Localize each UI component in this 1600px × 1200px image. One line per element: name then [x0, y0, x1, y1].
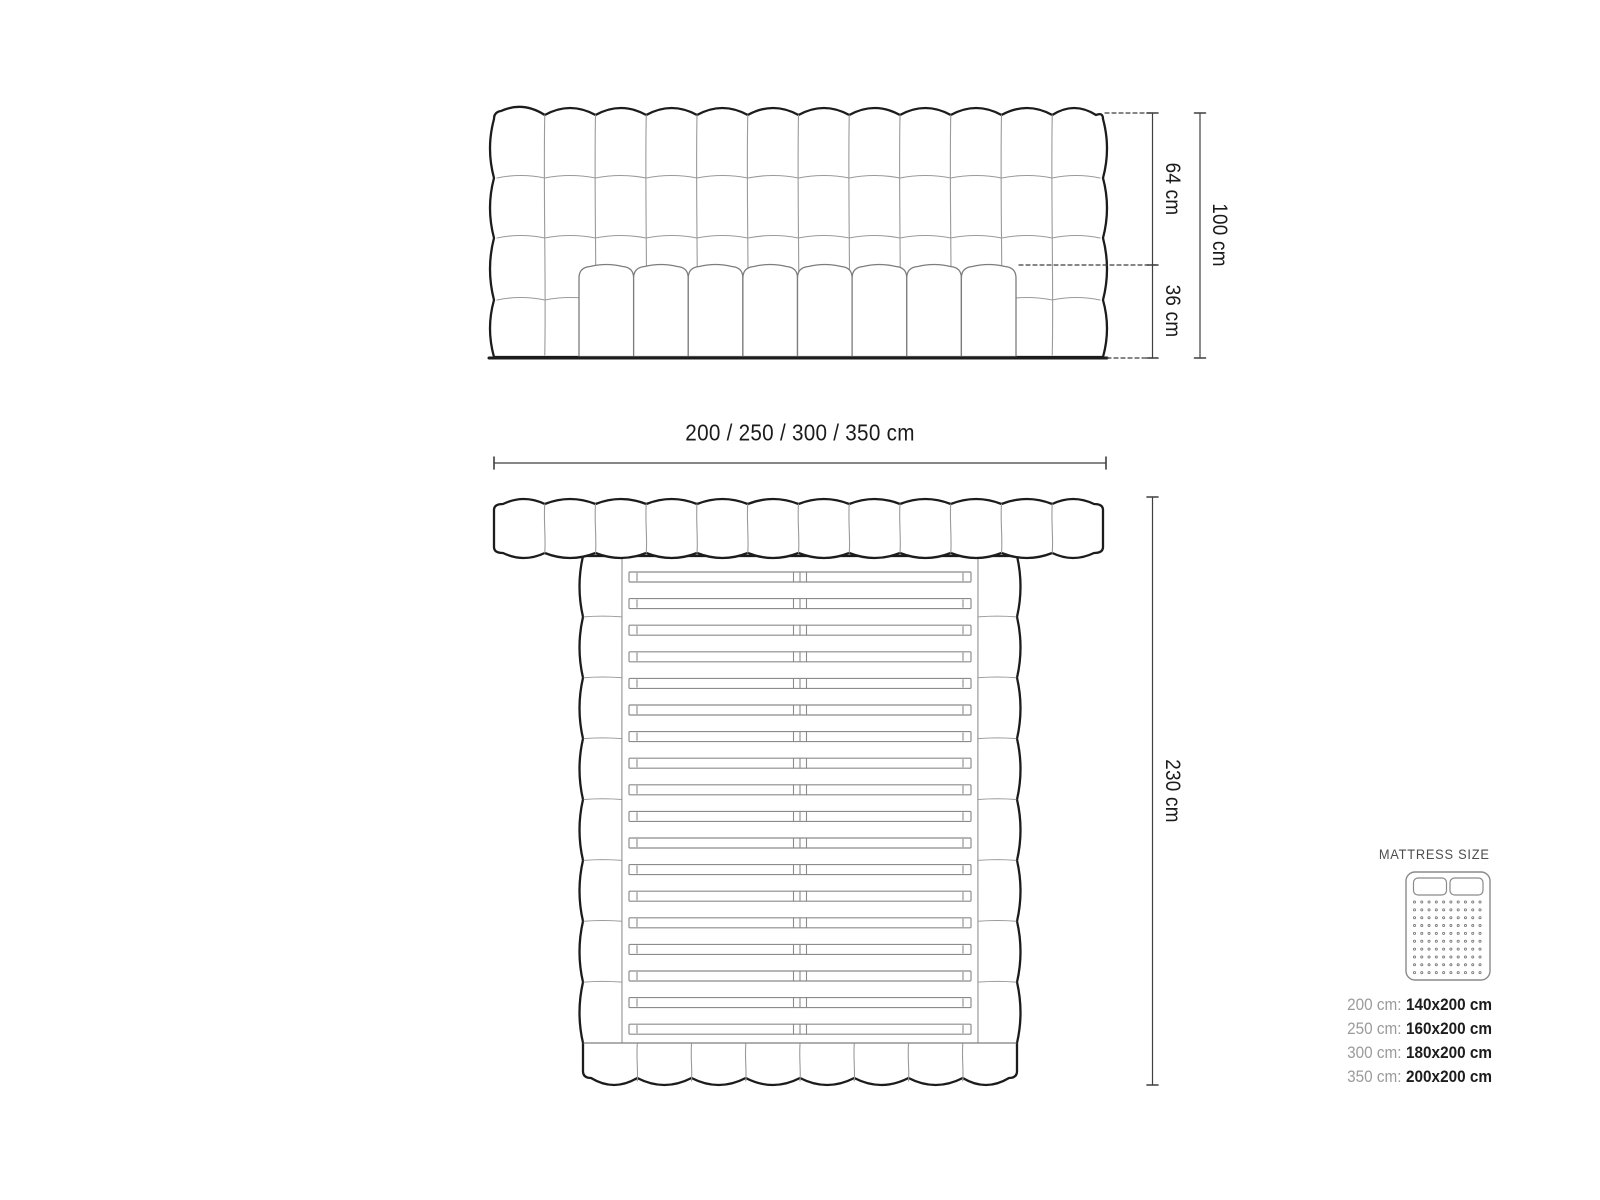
frame-size-label: 300 cm: [1347, 1043, 1401, 1062]
frame-size-label: 200 cm: [1347, 995, 1401, 1014]
mattress-size-row: 250 cm:160x200 cm [1347, 1017, 1492, 1041]
frame-size-label: 350 cm: [1347, 1067, 1401, 1086]
dim-label-upper-height: 64 cm [1160, 163, 1184, 216]
mattress-size-row: 350 cm:200x200 cm [1347, 1065, 1492, 1089]
mattress-size-value: 160x200 cm [1406, 1019, 1492, 1038]
dim-label-length: 230 cm [1160, 759, 1184, 823]
dim-label-lower-height: 36 cm [1160, 285, 1184, 338]
bed-dimensions-diagram: 64 cm 36 cm 100 cm 200 / 250 / 300 / 350… [0, 0, 1600, 1200]
mattress-size-value: 180x200 cm [1406, 1043, 1492, 1062]
mattress-size-row: 300 cm:180x200 cm [1347, 1041, 1492, 1065]
mattress-size-title: MATTRESS SIZE [1379, 847, 1490, 862]
mattress-size-list: 200 cm:140x200 cm 250 cm:160x200 cm 300 … [1331, 993, 1492, 1089]
mattress-size-value: 140x200 cm [1406, 995, 1492, 1014]
dim-label-total-height: 100 cm [1207, 203, 1231, 267]
mattress-size-value: 200x200 cm [1406, 1067, 1492, 1086]
frame-size-label: 250 cm: [1347, 1019, 1401, 1038]
mattress-size-row: 200 cm:140x200 cm [1347, 993, 1492, 1017]
dim-label-width: 200 / 250 / 300 / 350 cm [685, 420, 914, 447]
